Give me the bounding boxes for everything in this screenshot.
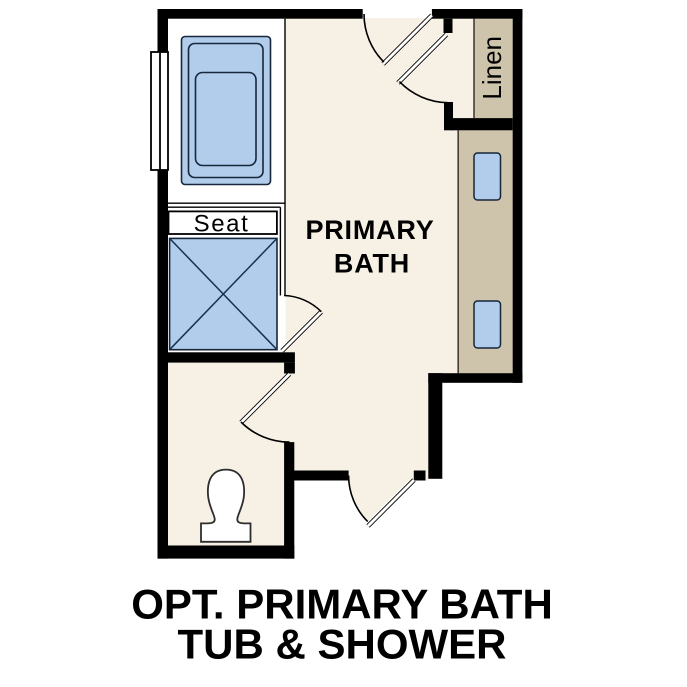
svg-text:Seat: Seat	[194, 211, 250, 238]
svg-text:PRIMARY: PRIMARY	[305, 215, 434, 245]
svg-text:BATH: BATH	[334, 249, 410, 279]
svg-text:TUB & SHOWER: TUB & SHOWER	[178, 620, 507, 667]
svg-text:Linen: Linen	[477, 36, 507, 100]
